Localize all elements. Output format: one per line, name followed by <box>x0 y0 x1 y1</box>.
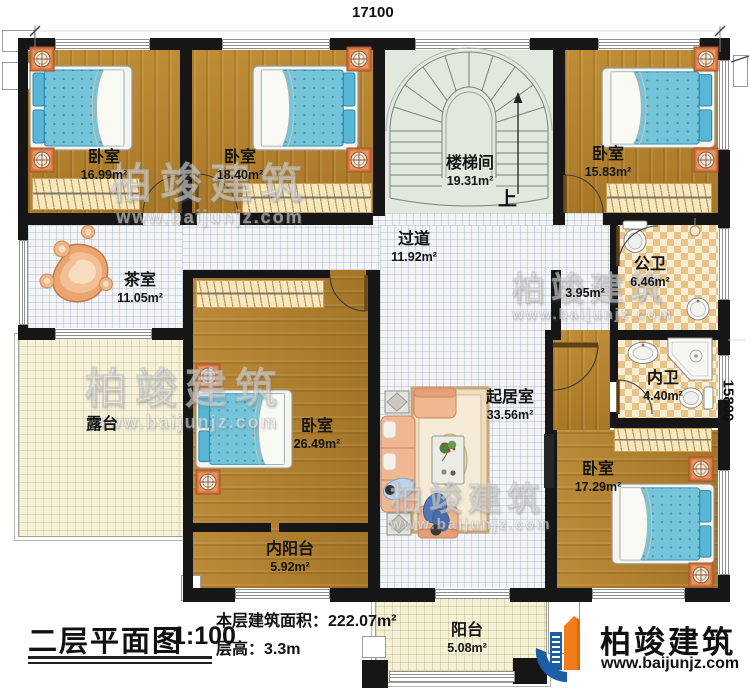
wall-segment <box>240 213 373 225</box>
label-corridor: 过道 11.92m² <box>391 231 437 265</box>
wardrobe <box>242 183 372 213</box>
label-bedroom-tr: 卧室 15.83m² <box>585 146 632 180</box>
window <box>222 39 330 49</box>
wall-segment <box>28 213 143 225</box>
dimension-marker <box>362 636 386 658</box>
wall-segment <box>368 270 380 588</box>
dimension-top: 17100 <box>352 4 394 21</box>
label-balcony: 阳台 5.08m² <box>447 622 487 656</box>
window <box>598 39 700 49</box>
wall-segment <box>193 270 330 278</box>
window <box>389 671 515 682</box>
hallway-floor <box>553 330 610 430</box>
window <box>719 228 729 300</box>
brand-logo-icon <box>534 610 596 686</box>
window <box>19 240 28 325</box>
wall-segment <box>193 523 271 532</box>
terrace-floor <box>18 337 185 537</box>
floor-plan: 柏竣建筑 www.baijunjz.com 柏竣建筑 www.baijunjz.… <box>0 0 750 696</box>
tv-panel <box>544 434 554 488</box>
wall-segment <box>685 588 730 602</box>
window <box>55 329 152 339</box>
wardrobe <box>606 183 712 213</box>
wall-segment <box>553 213 565 225</box>
wall-segment <box>183 588 235 602</box>
label-bedroom-tm: 卧室 18.40m² <box>217 149 264 183</box>
title-underline <box>28 656 212 659</box>
wall-segment <box>180 38 192 216</box>
wall-segment <box>373 38 385 216</box>
window <box>55 39 150 49</box>
plan-title: 二层平面图 <box>28 618 183 660</box>
wall-segment <box>366 270 380 278</box>
wall-segment <box>279 523 368 532</box>
wall-segment <box>718 300 730 355</box>
wardrobe <box>196 280 324 308</box>
wall-segment <box>603 213 718 225</box>
label-public-bath: 公卫 6.46m² <box>630 256 670 290</box>
wall-segment <box>545 588 592 602</box>
window <box>235 589 330 599</box>
window <box>592 589 685 599</box>
floor-area-text: 本层建筑面积：222.07m² <box>216 607 397 631</box>
label-bedroom-tl: 卧室 16.99m² <box>81 149 128 183</box>
label-inner-balcony: 内阳台 5.92m² <box>266 541 314 575</box>
wall-segment <box>510 588 545 602</box>
wall-segment <box>718 150 730 228</box>
window <box>719 60 729 150</box>
floor-height-text: 层高：3.3m <box>216 635 300 659</box>
wall-segment <box>610 340 618 382</box>
window <box>415 39 530 49</box>
wall-segment <box>718 38 730 60</box>
label-terrace: 露台 <box>86 416 118 435</box>
wall-segment <box>553 38 565 215</box>
wall-segment <box>362 660 388 688</box>
label-bedroom-br: 卧室 17.29m² <box>575 461 622 495</box>
label-living-room: 起居室 33.56m² <box>486 389 534 423</box>
title-underline <box>28 662 212 664</box>
wardrobe <box>614 428 712 452</box>
label-stairwell: 楼梯间 19.31m² <box>446 155 494 189</box>
dimension-marker <box>733 55 748 87</box>
window <box>435 589 510 599</box>
wall-segment <box>610 330 718 340</box>
wall-segment <box>180 213 197 225</box>
brand-website: www.baijunjz.com <box>601 655 739 673</box>
wall-segment <box>545 330 553 430</box>
label-bedroom-ml: 卧室 26.49m² <box>294 418 341 452</box>
wall-segment <box>18 328 55 340</box>
label-lobby: 3.95m² <box>565 286 605 301</box>
wall-segment <box>610 418 718 428</box>
wardrobe <box>32 178 140 210</box>
label-tea-room: 茶室 11.05m² <box>117 272 163 306</box>
wall-segment <box>610 213 618 340</box>
wall-segment <box>183 270 193 588</box>
room-bedroom-br-floor <box>557 430 718 588</box>
wall-segment <box>380 588 435 602</box>
wall-segment <box>330 588 380 602</box>
window <box>719 470 729 575</box>
label-private-bath: 内卫 4.40m² <box>643 370 683 404</box>
dimension-right: 15800 <box>720 371 737 431</box>
wall-segment <box>18 38 28 240</box>
stair-direction-label: 上 <box>498 184 517 211</box>
